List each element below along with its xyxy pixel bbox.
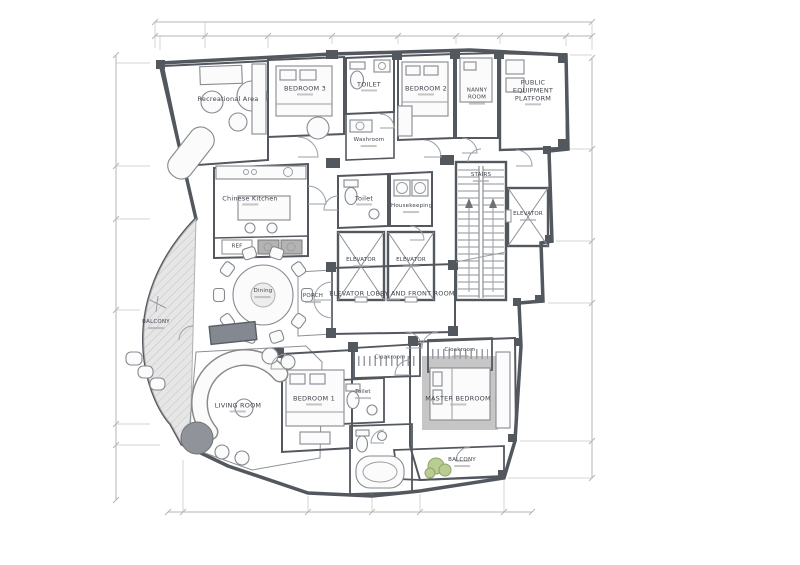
label-elevator-b: ELEVATOR <box>396 257 426 267</box>
dimension-subtext <box>353 265 369 267</box>
dimension-subtext <box>297 94 313 96</box>
label-chinese-kitchen: Chinese Kitchen <box>222 194 277 205</box>
floor-plan-page: Recreational Area BEDROOM 3 TOILET Washr… <box>0 0 800 565</box>
round-armchair <box>181 422 213 454</box>
bed-bedroom1 <box>286 370 344 444</box>
label-text: STAIRS <box>471 172 491 178</box>
label-recreational-area: Recreational Area <box>198 95 259 103</box>
label-master-bedroom: MASTER BEDROOM <box>425 394 491 405</box>
label-text: LIVING ROOM <box>215 401 261 409</box>
bed-bedroom2 <box>398 62 448 136</box>
label-balcony-right: BALCONY <box>448 457 476 467</box>
balcony-left-deck <box>144 219 196 448</box>
dimension-subtext <box>403 211 419 213</box>
dimension-subtext <box>361 90 377 92</box>
label-elevator-a: ELEVATOR <box>346 257 376 267</box>
label-text: PUBLIC EQUIPMENT PLATFORM <box>513 78 553 102</box>
dimension-subtext <box>148 327 164 329</box>
label-text: Cloakroom <box>444 347 475 353</box>
label-text: Toilet <box>355 194 373 202</box>
housekeeping-fixtures <box>394 180 428 196</box>
dimension-subtext <box>255 296 271 298</box>
label-text: Chinese Kitchen <box>222 194 277 202</box>
label-text: PORCH <box>303 293 323 299</box>
dimension-subtext <box>356 204 372 206</box>
label-toilet-top: TOILET <box>357 80 381 91</box>
floor-plan-drawing <box>0 0 800 565</box>
dimension-subtext <box>454 465 470 467</box>
dimension-subtext <box>469 102 485 104</box>
dimension-subtext <box>452 355 468 357</box>
dimension-subtext <box>384 299 400 301</box>
label-text: Recreational Area <box>198 95 259 103</box>
label-toilet-b1: Toilet <box>355 389 371 399</box>
bathroom-fixtures <box>356 430 404 488</box>
label-text: Toilet <box>355 389 371 395</box>
dimension-subtext <box>355 397 371 399</box>
label-elevator-lobby: ELEVATOR LOBBY AND FRONT ROOM <box>329 289 454 300</box>
label-text: ELEVATOR <box>346 257 376 263</box>
label-balcony-left: BALCONY <box>142 319 170 329</box>
dimension-subtext <box>418 94 434 96</box>
room-stairs <box>456 162 506 300</box>
label-bedroom1: BEDROOM 1 <box>293 394 335 405</box>
label-text: TOILET <box>357 80 381 88</box>
dimension-subtext <box>473 180 489 182</box>
dimension-subtext <box>306 404 322 406</box>
label-dining: Dining <box>254 288 273 298</box>
room-washroom <box>346 112 394 160</box>
label-text: ELEVATOR LOBBY AND FRONT ROOM <box>329 289 454 297</box>
dimension-subtext <box>450 404 466 406</box>
stairs-detail <box>456 166 506 298</box>
balcony-right-plant <box>425 458 451 478</box>
dimension-subtext <box>525 104 541 106</box>
label-cloakroom-b1: Cloakroom <box>374 355 405 362</box>
label-elevator-right: ELEVATOR <box>513 211 543 221</box>
label-bedroom2: BEDROOM 2 <box>405 84 447 95</box>
label-text: Washroom <box>354 137 385 143</box>
dimension-subtext <box>230 411 246 413</box>
label-porch: PORCH <box>303 293 323 303</box>
label-housekeeping: Housekeeping <box>391 203 431 213</box>
label-text: REF <box>231 244 242 250</box>
label-text: BALCONY <box>142 319 170 325</box>
label-text: BEDROOM 2 <box>405 84 447 92</box>
label-living-room: LIVING ROOM <box>215 401 261 412</box>
label-text: Cloakroom <box>374 355 405 361</box>
label-text: Dining <box>254 288 273 294</box>
label-text: BALCONY <box>448 457 476 463</box>
dimension-subtext <box>305 301 321 303</box>
dimension-subtext <box>403 265 419 267</box>
label-text: NANNY ROOM <box>467 88 487 101</box>
label-text: BEDROOM 1 <box>293 394 335 402</box>
dimension-subtext <box>361 145 377 147</box>
label-washroom: Washroom <box>354 137 385 147</box>
room-porch <box>298 270 332 336</box>
label-text: ELEVATOR <box>396 257 426 263</box>
label-text: Housekeeping <box>391 203 432 209</box>
label-ref: REF <box>231 244 242 251</box>
label-cloakroom-master: Cloakroom <box>444 347 475 357</box>
label-stairs: STAIRS <box>471 172 491 182</box>
label-public-equipment-platform: PUBLIC EQUIPMENT PLATFORM <box>504 78 562 105</box>
dimension-subtext <box>520 219 536 221</box>
kitchen-furniture <box>216 166 306 254</box>
tv-cabinet <box>209 322 257 345</box>
label-nanny-room: NANNY ROOM <box>459 88 495 105</box>
washroom-fixtures <box>350 120 372 132</box>
label-text: BEDROOM 3 <box>284 84 326 92</box>
label-text: ELEVATOR <box>513 211 543 217</box>
label-toilet-mid: Toilet <box>355 194 373 205</box>
dimension-subtext <box>242 204 258 206</box>
label-text: MASTER BEDROOM <box>425 394 491 402</box>
living-room-furniture <box>181 322 295 465</box>
label-bedroom3: BEDROOM 3 <box>284 84 326 95</box>
